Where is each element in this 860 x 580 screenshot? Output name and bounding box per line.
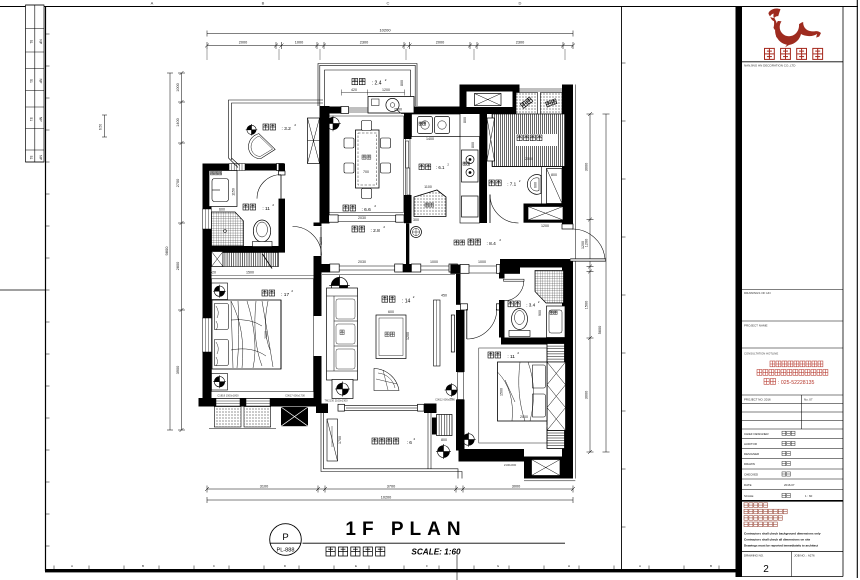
svg-text:1100: 1100 <box>424 185 432 189</box>
svg-text:2100x600: 2100x600 <box>504 463 517 467</box>
svg-text:2700: 2700 <box>176 179 180 187</box>
svg-text:SCALE: SCALE <box>744 494 754 498</box>
svg-text:300: 300 <box>413 218 419 222</box>
svg-text:2000: 2000 <box>520 415 528 419</box>
svg-text:800: 800 <box>463 117 467 123</box>
svg-text:C0617 600x1700: C0617 600x1700 <box>285 394 305 398</box>
svg-text:D: D <box>519 1 522 6</box>
svg-text:51: 51 <box>29 79 33 83</box>
svg-text:1400: 1400 <box>426 137 434 141</box>
svg-text:1 : 60: 1 : 60 <box>805 494 813 498</box>
svg-text:B: B <box>142 564 144 568</box>
svg-text:1500: 1500 <box>585 301 589 309</box>
svg-text:800: 800 <box>471 142 475 148</box>
svg-text:DATE: DATE <box>744 483 752 487</box>
svg-text:1700: 1700 <box>338 436 342 444</box>
svg-text:2016.07: 2016.07 <box>784 483 795 487</box>
svg-text:TM2130 2100x1300: TM2130 2100x1300 <box>324 399 348 403</box>
svg-text:: 025-52228135: : 025-52228135 <box>778 380 814 386</box>
svg-text:1000: 1000 <box>295 41 303 45</box>
svg-text:A: A <box>71 564 73 568</box>
svg-text:5600: 5600 <box>598 326 602 334</box>
svg-text:PROJECT NO. 2016: PROJECT NO. 2016 <box>744 398 771 402</box>
svg-text:800: 800 <box>551 173 557 177</box>
svg-text:A: A <box>639 564 641 568</box>
svg-text:700: 700 <box>363 170 369 174</box>
svg-text:3100: 3100 <box>260 485 268 489</box>
svg-text:B: B <box>262 1 265 6</box>
svg-text:SCALE: 1:60: SCALE: 1:60 <box>411 548 461 557</box>
svg-text:2300: 2300 <box>516 41 524 45</box>
svg-text:3900: 3900 <box>176 366 180 374</box>
svg-text:1200: 1200 <box>406 332 410 340</box>
svg-text:2030: 2030 <box>358 216 366 220</box>
svg-text:NP: NP <box>39 155 43 160</box>
svg-text:B: B <box>710 564 712 568</box>
svg-text:800: 800 <box>441 438 447 442</box>
svg-text:3000: 3000 <box>585 163 589 171</box>
svg-text:Contractors shall check all di: Contractors shall check all dimensions o… <box>744 538 811 542</box>
svg-text:1000: 1000 <box>478 260 486 264</box>
svg-text:3700: 3700 <box>387 485 395 489</box>
svg-text:DRAWINGS OF HN: DRAWINGS OF HN <box>744 291 771 295</box>
svg-text:: 6.1: : 6.1 <box>436 165 445 170</box>
svg-text:1200: 1200 <box>382 88 390 92</box>
svg-text:1F PLAN: 1F PLAN <box>345 519 466 540</box>
svg-text:10200: 10200 <box>381 496 392 500</box>
svg-text:520: 520 <box>210 271 216 275</box>
svg-text:: 6.6: : 6.6 <box>361 207 371 213</box>
svg-text:3000: 3000 <box>512 485 520 489</box>
svg-text:PL-888: PL-888 <box>276 548 294 554</box>
svg-text:CHECKED: CHECKED <box>744 473 758 477</box>
svg-text:420: 420 <box>351 88 357 92</box>
svg-text:1200: 1200 <box>541 224 549 228</box>
svg-text:6.50: 6.50 <box>99 124 103 130</box>
svg-text:2500: 2500 <box>394 108 402 112</box>
svg-text:: 6: : 6 <box>407 440 413 446</box>
svg-text:CONSULTATION HOTLINE: CONSULTATION HOTLINE <box>744 352 778 356</box>
svg-text:: 14: : 14 <box>402 299 411 305</box>
svg-text:450: 450 <box>441 294 447 298</box>
svg-text:DRAWN: DRAWN <box>744 462 755 466</box>
svg-text:2030: 2030 <box>358 260 366 264</box>
svg-text:DESIGNER: DESIGNER <box>744 452 759 456</box>
svg-text:900: 900 <box>538 310 542 316</box>
svg-text:: 7.1: : 7.1 <box>507 182 516 187</box>
svg-text:NP: NP <box>39 39 43 44</box>
svg-text:JOB NO. : A276: JOB NO. : A276 <box>794 554 815 558</box>
svg-text:C1818 1500x1800: C1818 1500x1800 <box>217 394 239 398</box>
svg-text:1200: 1200 <box>585 239 589 247</box>
svg-text:2800: 2800 <box>176 262 180 270</box>
svg-text:AUDITOR: AUDITOR <box>744 442 757 446</box>
svg-text:F: F <box>426 564 428 568</box>
svg-text:2000: 2000 <box>264 331 268 339</box>
svg-text:2: 2 <box>763 564 769 575</box>
svg-text:H: H <box>568 564 570 568</box>
svg-text:A: A <box>151 1 154 6</box>
svg-text:1500: 1500 <box>500 388 504 396</box>
svg-text:CHIEF DESIGNER: CHIEF DESIGNER <box>744 432 769 436</box>
svg-text:51: 51 <box>29 156 33 160</box>
svg-text:1000: 1000 <box>430 260 438 264</box>
svg-text:51: 51 <box>29 40 33 44</box>
svg-text:DRAWING NO.: DRAWING NO. <box>744 554 764 558</box>
svg-text:9800: 9800 <box>164 246 169 256</box>
svg-text:2000: 2000 <box>436 41 444 45</box>
svg-text:C0612 600x1200: C0612 600x1200 <box>435 398 455 402</box>
svg-text:600: 600 <box>534 182 538 188</box>
svg-text:1000: 1000 <box>176 83 180 91</box>
svg-text:1150: 1150 <box>232 188 236 196</box>
svg-text:: 11: : 11 <box>262 206 270 212</box>
svg-text:1200: 1200 <box>319 237 323 245</box>
svg-text:Drawings must be reported imme: Drawings must be reported immediately to… <box>744 544 818 548</box>
svg-text:NANJING HN DECORATION CO.,L: NANJING HN DECORATION CO.,LTD <box>744 64 796 68</box>
svg-text:PROJECT NAME: PROJECT NAME <box>744 324 767 328</box>
svg-text:51: 51 <box>29 117 33 121</box>
svg-text:C: C <box>387 1 390 6</box>
svg-text:600: 600 <box>219 208 225 212</box>
svg-text:600: 600 <box>388 310 394 314</box>
svg-text:No. 07: No. 07 <box>804 398 813 402</box>
svg-text:1500: 1500 <box>246 271 254 275</box>
svg-text:NP: NP <box>39 117 43 122</box>
svg-text:2000: 2000 <box>239 41 247 45</box>
svg-text:: 17: : 17 <box>281 292 289 298</box>
svg-text:1200: 1200 <box>581 241 585 249</box>
svg-text:800: 800 <box>400 80 404 86</box>
svg-text:: 3.2: : 3.2 <box>281 126 291 132</box>
svg-text:NP: NP <box>39 79 43 84</box>
svg-text:2300: 2300 <box>360 41 368 45</box>
svg-text:: 2.8: : 2.8 <box>370 228 380 234</box>
svg-text:: 2.4: : 2.4 <box>372 81 382 87</box>
svg-text:Contractors shall check backgr: Contractors shall check background dimen… <box>744 532 821 536</box>
svg-text:1400: 1400 <box>176 118 180 126</box>
svg-text:2500: 2500 <box>525 157 533 161</box>
svg-text:P: P <box>282 532 288 543</box>
svg-text:E: E <box>355 564 357 568</box>
svg-text:3000: 3000 <box>585 391 589 399</box>
svg-text:10200: 10200 <box>379 28 391 33</box>
svg-text:: 8.4: : 8.4 <box>486 241 496 247</box>
svg-text:: 3.4: : 3.4 <box>526 303 535 308</box>
svg-text:: 11: : 11 <box>507 354 515 360</box>
